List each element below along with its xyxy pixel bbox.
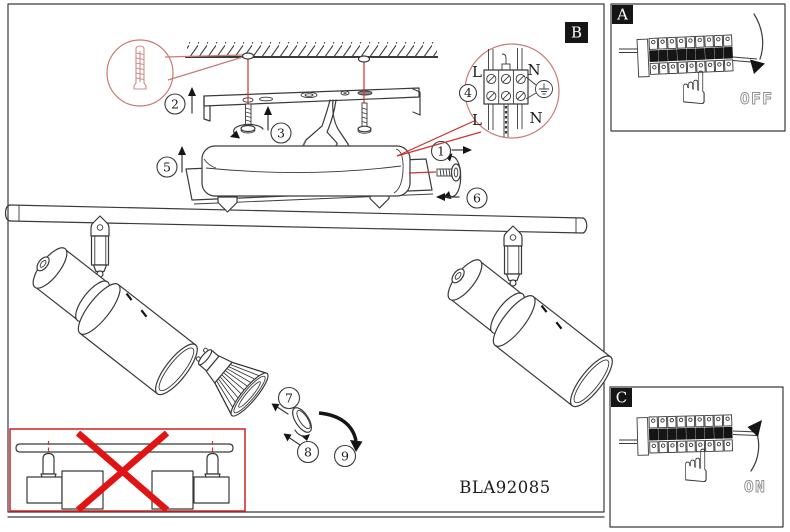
step-5-badge: 5 xyxy=(157,146,186,177)
pointing-hand-icon: ☝ xyxy=(680,61,708,115)
mounting-screw-right xyxy=(358,103,371,133)
mounting-bracket xyxy=(204,88,420,150)
step-4-badge: 4 xyxy=(460,85,477,102)
terminal-label-neutral-bottom: N xyxy=(529,109,542,127)
earth-symbol-icon xyxy=(526,77,553,99)
stem-right xyxy=(504,226,522,286)
stem-left xyxy=(91,216,109,277)
ceiling-hatch xyxy=(185,42,438,57)
terminal-block xyxy=(484,64,528,104)
terminal-label-live-bottom: L xyxy=(472,111,482,129)
detail-a-label: A xyxy=(616,6,628,24)
mounting-screw-left xyxy=(230,104,263,139)
product-code: BLA92085 xyxy=(459,478,551,497)
terminal-label-live-top: L xyxy=(472,63,482,81)
detail-c-label: C xyxy=(616,389,627,407)
step-9-number: 9 xyxy=(341,448,349,463)
mains-wires xyxy=(303,100,350,150)
breaker-panel-a: A ☝ OFF xyxy=(611,4,785,131)
step-1-number: 1 xyxy=(437,143,445,158)
breaker-panel-c: C ☝ ON xyxy=(610,387,783,527)
on-arrow xyxy=(751,431,759,471)
svg-text:B: B xyxy=(571,24,582,42)
step-2-number: 2 xyxy=(171,96,179,111)
step-3-number: 3 xyxy=(277,125,285,140)
canopy xyxy=(202,146,410,196)
instruction-sheet: 2 3 5 xyxy=(0,0,790,532)
swing-arrow xyxy=(319,413,356,441)
step-6-badge: 6 xyxy=(436,188,487,208)
off-label: OFF xyxy=(740,89,773,108)
step-7-number: 7 xyxy=(285,390,293,405)
on-label: ON xyxy=(744,477,766,496)
installation-diagram: 2 3 5 xyxy=(0,0,790,532)
wall-anchor-icon xyxy=(134,46,146,89)
trim-ring xyxy=(289,405,315,436)
step-8-number: 8 xyxy=(304,444,312,459)
detail-b-label: B xyxy=(565,22,588,43)
spotlight-left xyxy=(20,237,204,400)
step-4-number: 4 xyxy=(464,85,472,100)
step-9-badge: 9 xyxy=(319,413,363,467)
wrong-installation-box xyxy=(10,429,245,511)
step-3-badge: 3 xyxy=(264,106,291,143)
step-8-badge: 8 xyxy=(284,434,319,463)
bracket-slot xyxy=(260,97,273,101)
pointing-hand-icon: ☝ xyxy=(682,439,710,493)
step-5-number: 5 xyxy=(163,159,171,174)
off-arrow xyxy=(754,14,763,59)
step-2-badge: 2 xyxy=(165,87,196,114)
step-6-number: 6 xyxy=(473,190,481,205)
step-7-badge: 7 xyxy=(272,388,300,415)
bar-end-cap xyxy=(583,218,587,233)
terminal-label-neutral-top: N xyxy=(527,61,540,79)
spotlight-right xyxy=(435,249,619,412)
arrow-to-ring xyxy=(289,438,300,446)
